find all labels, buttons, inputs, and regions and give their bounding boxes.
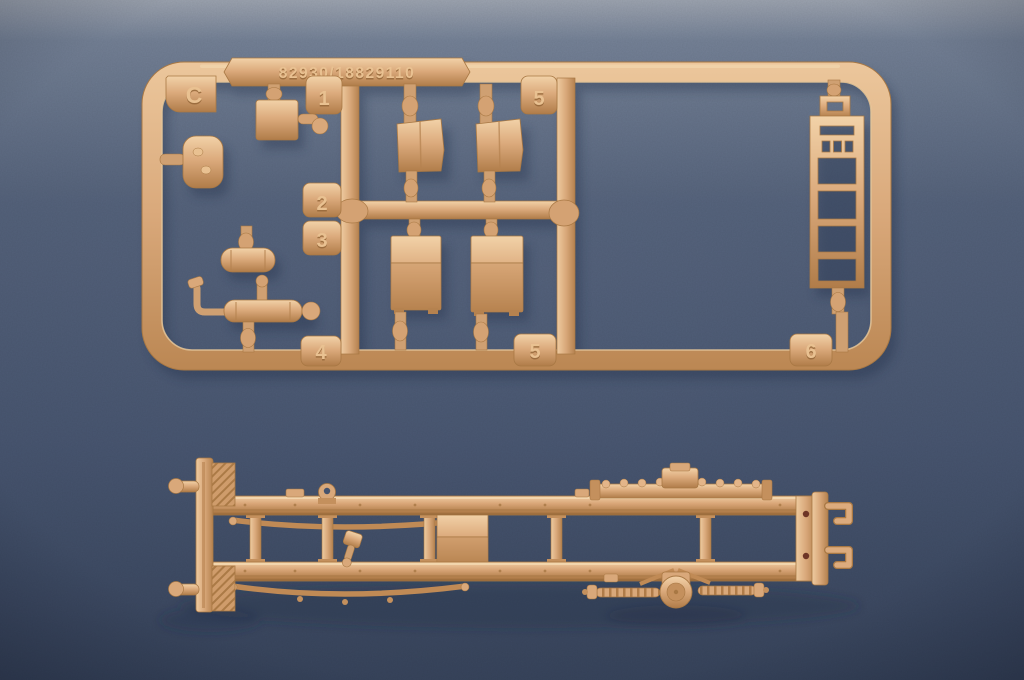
number-tab-1: 1 1 bbox=[306, 76, 342, 114]
rail-bracket bbox=[286, 489, 304, 497]
rail-bracket bbox=[604, 574, 618, 582]
tow-hook-bottom bbox=[169, 582, 200, 597]
runner-junction-gate-right bbox=[549, 200, 579, 226]
sprue-letter: C bbox=[186, 82, 203, 108]
runner-horizontal bbox=[352, 201, 564, 219]
mold-code-plate: 82930/18829110 82930/18829110 bbox=[224, 58, 470, 86]
hub-right bbox=[754, 583, 764, 597]
number-tab-5-bottom: 5 5 bbox=[514, 334, 556, 366]
crossmember-hole-bottom bbox=[803, 553, 809, 559]
model-kit-photo: 82930/18829110 82930/18829110 C C 1 1 2 … bbox=[0, 0, 1024, 680]
rail-bracket bbox=[575, 489, 589, 497]
sprue-letter-tab: C C bbox=[166, 76, 216, 112]
frame-rail-top bbox=[213, 496, 817, 515]
number-tab-6: 6 6 bbox=[790, 334, 832, 366]
tab-2-label: 2 bbox=[316, 193, 327, 215]
tab-1-label: 1 bbox=[318, 88, 329, 110]
number-tab-4: 4 4 bbox=[301, 336, 341, 366]
photo-canvas: 82930/18829110 82930/18829110 C C 1 1 2 … bbox=[0, 0, 1024, 680]
tab-6-label: 6 bbox=[805, 341, 816, 363]
number-tab-3: 3 3 bbox=[303, 221, 341, 255]
bumper-gusset-top bbox=[212, 463, 235, 506]
bumper-gusset-bottom bbox=[212, 566, 235, 611]
number-tab-5-top: 5 5 bbox=[521, 76, 557, 114]
hub-left bbox=[587, 585, 597, 599]
mold-code-text: 82930/18829110 bbox=[279, 65, 416, 82]
fifth-wheel-plate bbox=[437, 514, 488, 564]
frame-rail-bottom bbox=[213, 562, 817, 581]
tow-hook-top bbox=[169, 479, 200, 494]
number-tab-2: 2 2 bbox=[303, 183, 341, 217]
lifting-eye bbox=[318, 484, 336, 505]
tab-3-label: 3 bbox=[316, 230, 327, 252]
tab-4-label: 4 bbox=[315, 342, 327, 364]
tab-5-top-label: 5 bbox=[533, 88, 544, 110]
crossmember-hole-top bbox=[803, 511, 809, 517]
tab-5-bottom-label: 5 bbox=[529, 341, 540, 363]
